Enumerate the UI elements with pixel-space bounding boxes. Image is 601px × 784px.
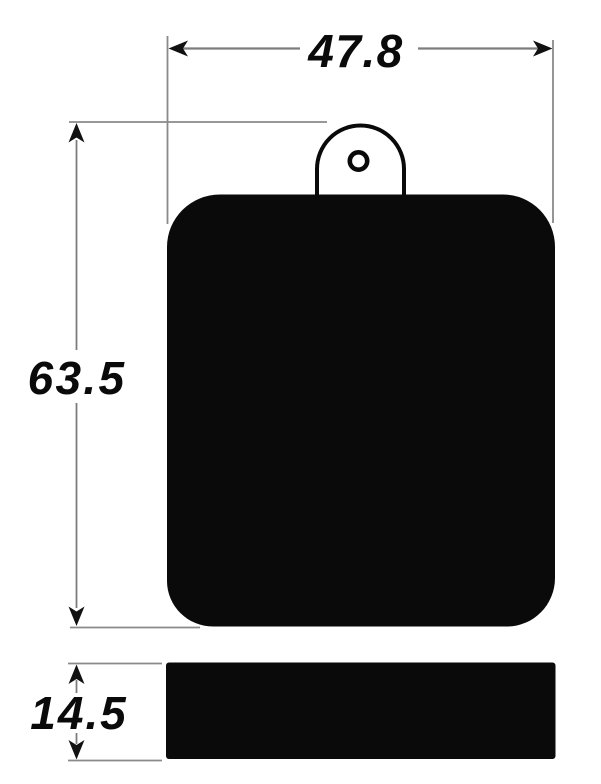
svg-text:47.8: 47.8: [307, 25, 404, 77]
svg-text:63.5: 63.5: [28, 352, 127, 404]
svg-text:14.5: 14.5: [30, 687, 128, 739]
